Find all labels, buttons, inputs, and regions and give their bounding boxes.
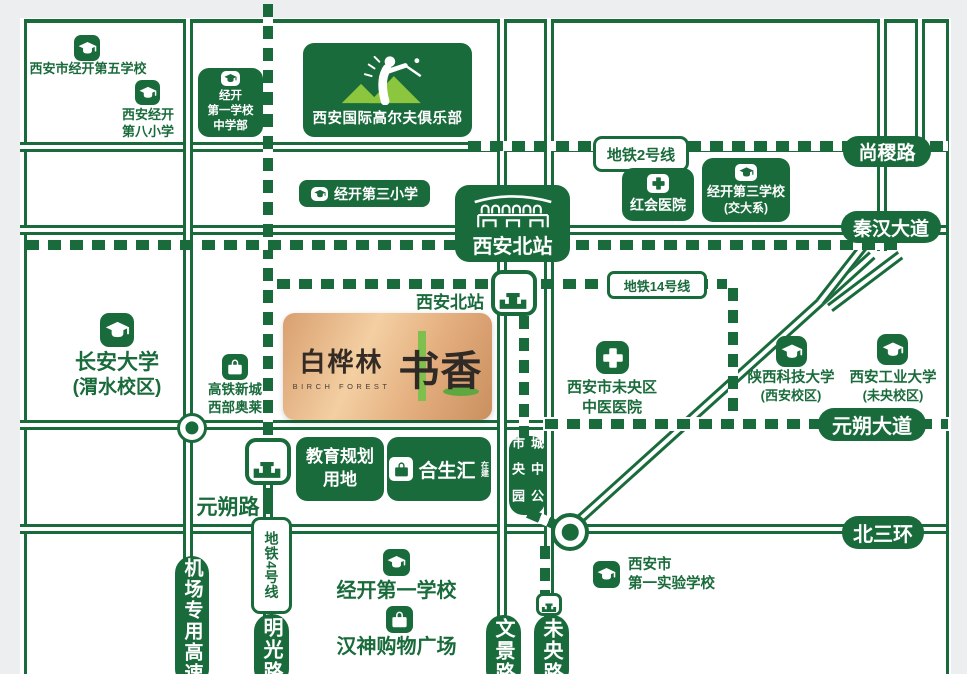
metro-line2-track-south1 <box>519 316 529 440</box>
label-line: 高铁新城 <box>199 381 271 399</box>
road-label-yuanshuo-avenue: 元朔大道 <box>818 408 926 441</box>
metro-line4-connector <box>264 488 273 514</box>
metro-line14-label: 地铁14号线 <box>607 271 707 299</box>
school-icon-tile <box>100 313 134 347</box>
poi-hanshen-mall-label: 汉神购物广场 <box>323 634 470 660</box>
metro-logo-icon <box>541 602 557 613</box>
metro-station-north-icon <box>491 270 537 316</box>
label-line: 第一实验学校 <box>628 575 758 594</box>
school-icon-tile <box>593 561 620 588</box>
poi-school5-label: 西安市经开第五学校 <box>12 61 164 78</box>
badge-line: 公园 <box>508 489 546 515</box>
badge-line: 合生汇 <box>418 456 475 483</box>
logo-chinese-block: 白桦林 BIRCH FOREST <box>293 342 391 391</box>
metro-logo-icon <box>252 460 282 479</box>
badge-line: 中学部 <box>213 119 248 134</box>
badge-line: 经开 <box>219 89 242 104</box>
logo-shuxiang: 书香 <box>398 337 482 397</box>
badge-line: 红会医院 <box>630 195 686 215</box>
badge-line: (交大系) <box>724 201 768 216</box>
logo-shu-char: 书 <box>398 337 440 397</box>
shopping-bag-icon <box>389 457 413 481</box>
road-label-airport-expressway: 机场专用高速 <box>175 556 209 674</box>
label-line: 西安市 <box>628 556 758 575</box>
poi-outlets-label: 高铁新城 西部奥莱 <box>199 381 271 416</box>
label-line: (未央校区) <box>842 388 944 405</box>
badge-line: 教育规划 <box>306 446 374 469</box>
poi-tcm-hospital-label: 西安市未央区 中医医院 <box>561 378 663 417</box>
jingkai-no3-primary-badge: 经开第三小学 <box>299 180 430 207</box>
logo-name-cn: 白桦林 <box>299 342 383 379</box>
road-right-2 <box>915 19 925 147</box>
shopping-bag-icon-tile <box>386 606 413 633</box>
poi-jingkai-no1-school-label: 经开第一学校 <box>323 578 470 604</box>
hospital-cross-icon-tile <box>596 341 629 374</box>
jingkai-no1-middle-badge: 经开 第一学校 中学部 <box>198 68 263 137</box>
hesheng-mall-badge: 合生汇 在建 <box>387 437 491 501</box>
metro-line4-track <box>263 4 273 442</box>
badge-line: 第一学校 <box>208 104 254 119</box>
school-icon <box>221 71 240 86</box>
golf-club-label: 西安国际高尔夫俱乐部 <box>313 107 463 128</box>
label-line: 西部奥莱 <box>199 399 271 417</box>
label-line: 陕西科技大学 <box>741 369 841 388</box>
jingkai-no3-school-badge: 经开第三学校 (交大系) <box>702 158 790 222</box>
road-wenjing <box>497 19 507 674</box>
road-label-shangji: 尚稷路 <box>843 136 931 167</box>
north-station-label: 西安北站 <box>473 230 553 259</box>
north-station-badge: 西安北站 <box>455 185 570 262</box>
badge-line: 用地 <box>323 469 357 492</box>
metro-station-line4-icon <box>245 438 291 485</box>
school-icon <box>311 187 328 201</box>
location-map: 尚稷路 秦汉大道 元朔大道 北三环 元朔路 机场专用高速 明光路 文景路 未央路… <box>0 0 967 674</box>
road-label-wenjing: 文景路 <box>486 615 521 674</box>
school-icon-tile <box>383 549 410 576</box>
label-line: (渭水校区) <box>35 376 199 400</box>
logo-xiang-char: 香 <box>440 337 482 397</box>
education-land-badge: 教育规划 用地 <box>296 437 384 501</box>
shopping-bag-icon-tile <box>222 354 248 380</box>
metro-station-north-label: 西安北站 <box>408 292 492 314</box>
roundabout-west <box>177 413 207 443</box>
road-left-edge <box>24 19 27 674</box>
central-park-badge: 城市中央公园 <box>509 436 545 515</box>
project-logo: 白桦林 BIRCH FOREST 书香 <box>283 313 492 420</box>
golf-club-badge: 西安国际高尔夫俱乐部 <box>303 43 472 137</box>
hospital-cross-icon <box>647 174 669 193</box>
road-top <box>24 19 949 23</box>
roundabout-east <box>551 513 589 551</box>
honghui-hospital-badge: 红会医院 <box>622 168 694 221</box>
road-label-qinhan: 秦汉大道 <box>841 211 941 243</box>
road-label-beisanhuan: 北三环 <box>842 516 924 549</box>
label-line: 长安大学 <box>35 350 199 376</box>
metro-logo-icon <box>498 291 528 310</box>
logo-name-en: BIRCH FOREST <box>293 382 391 391</box>
school-icon <box>735 164 757 181</box>
label-line: 中医医院 <box>561 398 663 418</box>
metro-line2-label: 地铁2号线 <box>593 136 689 172</box>
poi-changan-university-label: 长安大学 (渭水校区) <box>35 350 199 400</box>
label-line: 西安经开 <box>110 107 186 124</box>
road-right-edge <box>946 19 949 674</box>
road-label-weiyang: 未央路 <box>534 615 569 674</box>
road-label-mingguang: 明光路 <box>254 614 289 674</box>
label-line: 西安市未央区 <box>561 378 663 398</box>
poi-school8-label: 西安经开 第八小学 <box>110 107 186 141</box>
school-icon-tile <box>74 35 100 61</box>
metro-line2-track-south2 <box>540 546 550 596</box>
road-yuanshuo-beisanhuan <box>20 524 949 534</box>
metro-line14-track-curve <box>728 288 738 424</box>
school-icon-tile <box>135 80 160 105</box>
badge-line: 城市 <box>508 436 546 462</box>
metro-station-small-icon <box>536 593 562 616</box>
poi-first-experimental-school-label: 西安市 第一实验学校 <box>628 556 758 594</box>
badge-line: 经开第三学校 <box>707 184 785 200</box>
school-icon-tile <box>776 336 807 367</box>
badge-line: 中央 <box>508 462 546 488</box>
label-line: 第八小学 <box>110 124 186 141</box>
golfer-icon <box>336 53 440 105</box>
road-label-yuanshuo-road: 元朔路 <box>194 494 262 521</box>
poi-xatu-label: 西安工业大学 (未央校区) <box>842 369 944 405</box>
train-station-icon <box>467 189 559 229</box>
poi-sust-label: 陕西科技大学 (西安校区) <box>741 369 841 405</box>
badge-tag: 在建 <box>481 461 489 477</box>
school-icon-tile <box>877 334 908 365</box>
label-line: (西安校区) <box>741 388 841 405</box>
badge-line: 经开第三小学 <box>334 184 418 204</box>
metro-line4-label: 地铁4号线 <box>251 517 292 614</box>
label-line: 西安工业大学 <box>842 369 944 388</box>
